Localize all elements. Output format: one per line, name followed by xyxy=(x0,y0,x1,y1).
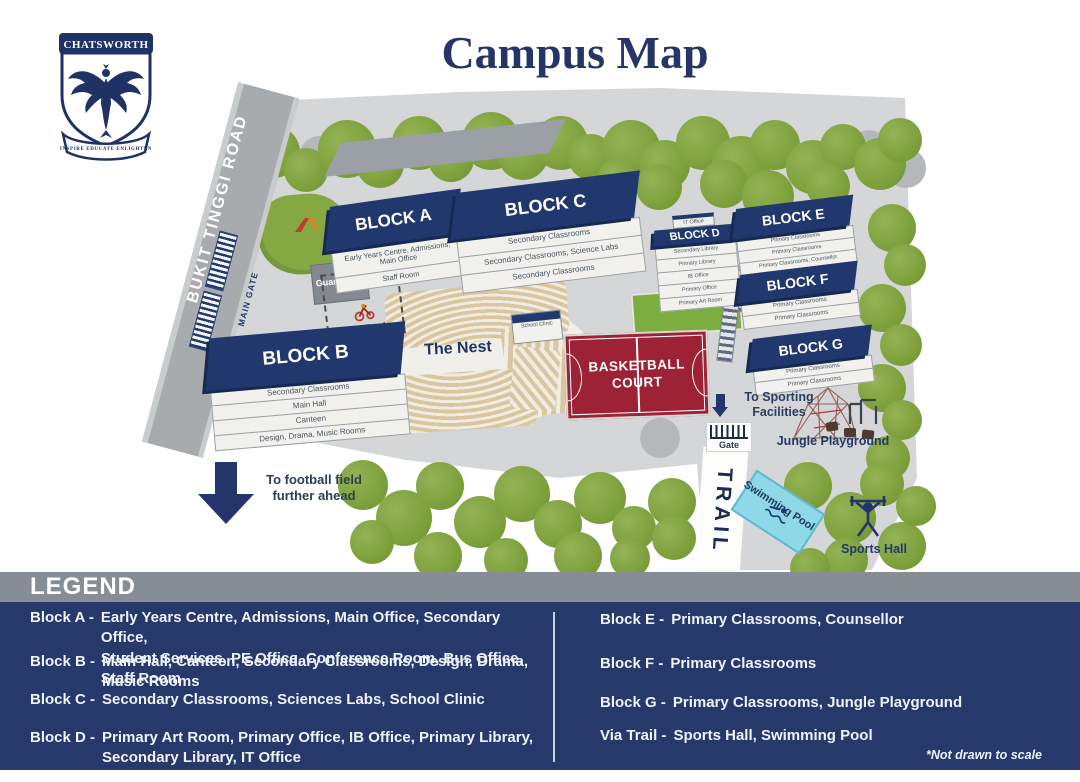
footer-strip xyxy=(0,770,1080,782)
barrel xyxy=(825,421,838,432)
school-clinic: School Clinic xyxy=(511,309,564,344)
tree xyxy=(350,520,394,564)
legend-header-bar xyxy=(0,572,1080,602)
basketball-court-label: BASKETBALL COURT xyxy=(566,332,709,419)
legend-item-block-e: Block E - Primary Classrooms, Counsellor xyxy=(600,610,1040,630)
legend-divider xyxy=(553,612,555,762)
tree xyxy=(878,118,922,162)
block-d: IT Office BLOCK D Secondary Library Prim… xyxy=(652,211,742,313)
scale-note: *Not drawn to scale xyxy=(926,748,1042,762)
tree xyxy=(880,324,922,366)
tree xyxy=(884,244,926,286)
page-title: Campus Map xyxy=(441,26,708,79)
legend-item-block-d: Block D - Primary Art Room, Primary Offi… xyxy=(30,728,550,769)
legend-item-block-b: Block B - Main Hall, Canteen, Secondary … xyxy=(30,652,550,693)
legend-title: LEGEND xyxy=(30,572,136,602)
campus-map-page: CHATSWORTH INSPIRE EDUCATE ENLIGHTEN Cam… xyxy=(0,0,1080,782)
legend-item-block-f: Block F - Primary Classrooms xyxy=(600,654,1040,674)
gate-fence-icon xyxy=(710,425,748,439)
tree xyxy=(700,160,748,208)
tree xyxy=(416,462,464,510)
campus-map: BUKIT TINGGI ROAD MAIN GATE Guard Post B… xyxy=(0,86,1080,572)
crest-school-name: CHATSWORTH xyxy=(63,39,148,51)
football-label: To football field further ahead xyxy=(255,472,373,505)
jungle-playground-label: Jungle Playground xyxy=(768,434,898,448)
legend-item-block-g: Block G - Primary Classrooms, Jungle Pla… xyxy=(600,693,1040,713)
legend-item-via-trail: Via Trail - Sports Hall, Swimming Pool xyxy=(600,726,1040,746)
weightlifter-icon xyxy=(848,494,888,540)
sports-hall-label: Sports Hall xyxy=(834,542,914,556)
slide-icon xyxy=(292,214,322,234)
tricycle-icon xyxy=(351,301,377,324)
gate: Gate xyxy=(706,422,752,452)
tree xyxy=(636,164,682,210)
legend-item-block-c: Block C - Secondary Classrooms, Sciences… xyxy=(30,690,550,710)
amphitheatre-steps xyxy=(509,346,561,412)
tree xyxy=(652,516,696,560)
block-b: BLOCK B Secondary Classrooms Main Hall C… xyxy=(205,322,410,452)
sporting-label: To Sporting Facilities xyxy=(733,390,825,420)
basketball-court: BASKETBALL COURT xyxy=(564,330,711,421)
tree xyxy=(896,486,936,526)
block-a: BLOCK A Early Years Centre, Admissions, … xyxy=(325,189,468,294)
gate-label: Gate xyxy=(707,439,751,451)
pull-up-bars-icon xyxy=(846,396,880,426)
shade-blob xyxy=(640,418,680,458)
